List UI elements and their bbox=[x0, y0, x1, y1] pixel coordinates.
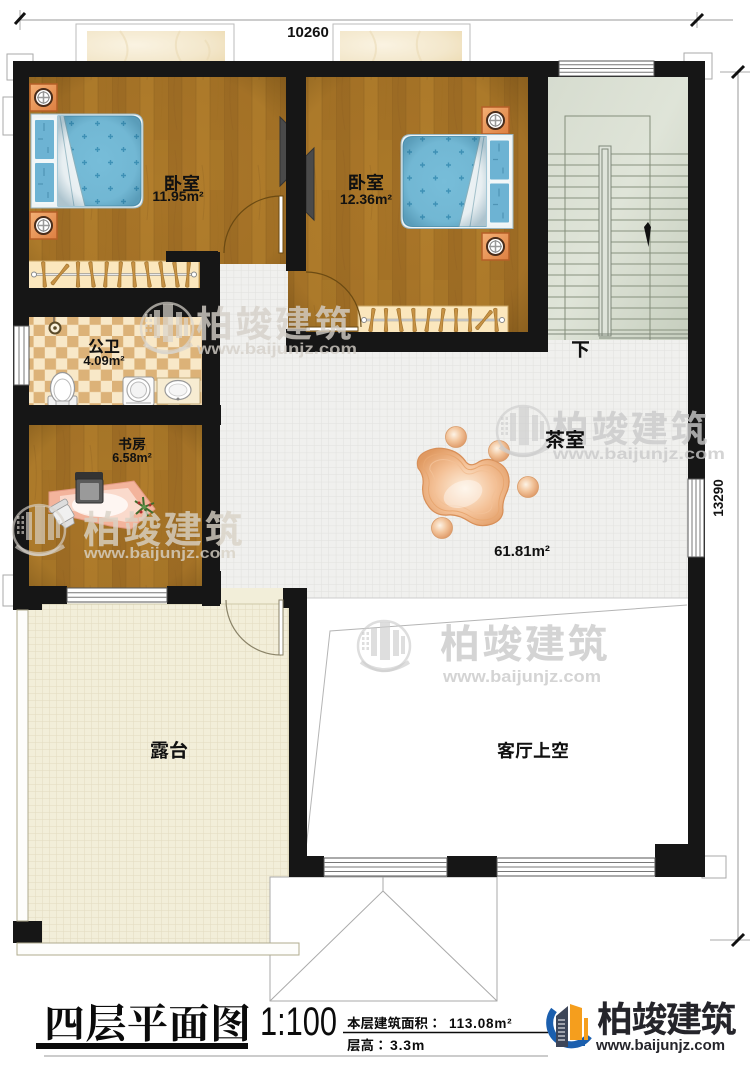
svg-text:61.81m²: 61.81m² bbox=[494, 543, 550, 560]
svg-text:6.58m²: 6.58m² bbox=[112, 451, 152, 465]
svg-text:1:100: 1:100 bbox=[260, 1000, 337, 1044]
svg-text:www.baijunjz.com: www.baijunjz.com bbox=[595, 1037, 725, 1054]
svg-text:113.08m²: 113.08m² bbox=[449, 1016, 512, 1031]
svg-text:12.36m²: 12.36m² bbox=[340, 191, 392, 207]
svg-text:www.baijunjz.com: www.baijunjz.com bbox=[83, 545, 236, 562]
svg-text:3.3m: 3.3m bbox=[390, 1037, 425, 1053]
svg-text:10260: 10260 bbox=[287, 24, 329, 41]
svg-text:www.baijunjz.com: www.baijunjz.com bbox=[442, 667, 601, 686]
svg-text:13290: 13290 bbox=[711, 479, 726, 517]
svg-text:www.baijunjz.com: www.baijunjz.com bbox=[552, 446, 725, 463]
svg-text:www.baijunjz.com: www.baijunjz.com bbox=[196, 341, 357, 358]
svg-text:11.95m²: 11.95m² bbox=[152, 188, 204, 204]
svg-text:4.09m²: 4.09m² bbox=[83, 353, 125, 368]
